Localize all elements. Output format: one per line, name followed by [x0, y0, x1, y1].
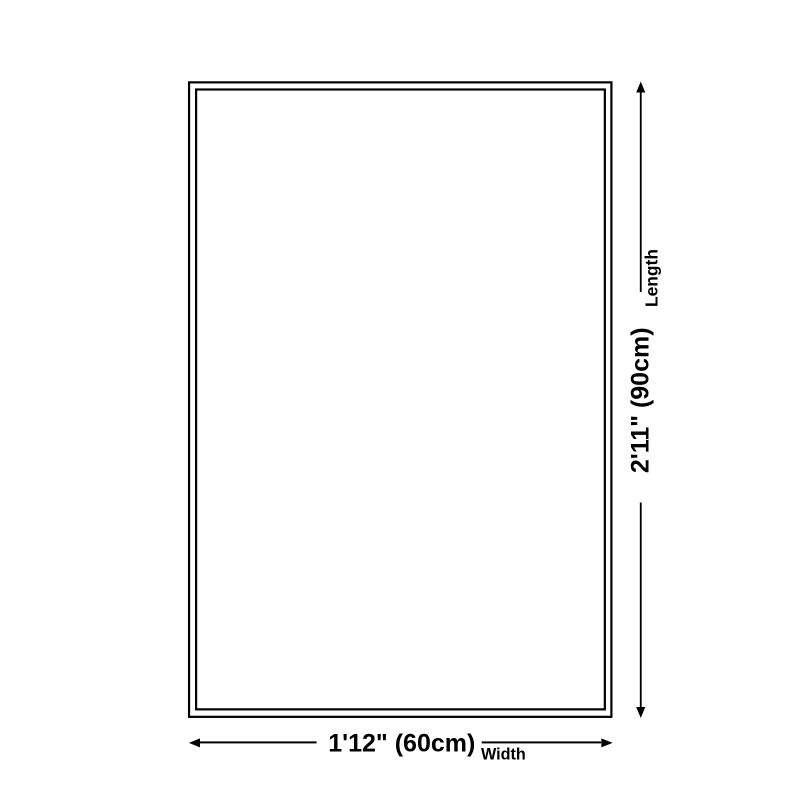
svg-text:2'11" (90cm): 2'11" (90cm)	[627, 327, 655, 473]
svg-text:Length: Length	[642, 249, 662, 307]
svg-text:Width: Width	[481, 745, 526, 763]
svg-text:1'12" (60cm): 1'12" (60cm)	[328, 730, 475, 758]
